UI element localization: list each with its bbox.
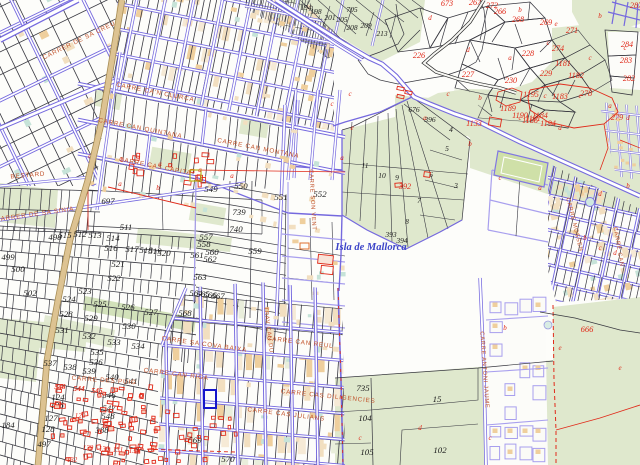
svg-text:512: 512 (73, 229, 87, 239)
svg-text:524: 524 (62, 294, 76, 304)
svg-text:393: 393 (384, 230, 397, 239)
svg-text:b: b (518, 6, 522, 14)
svg-text:523: 523 (78, 286, 92, 296)
svg-text:697: 697 (101, 196, 115, 206)
svg-text:15: 15 (433, 394, 442, 404)
svg-text:105: 105 (360, 447, 374, 457)
svg-text:a: a (608, 102, 612, 110)
svg-text:535: 535 (90, 347, 104, 357)
svg-text:520: 520 (157, 248, 171, 258)
svg-text:b: b (598, 12, 602, 20)
svg-text:531: 531 (55, 325, 68, 335)
svg-text:1133: 1133 (466, 119, 482, 128)
svg-text:184: 184 (1, 420, 15, 430)
svg-text:e: e (558, 344, 561, 352)
svg-text:527: 527 (144, 307, 158, 317)
svg-text:526: 526 (121, 302, 135, 312)
svg-text:559: 559 (248, 246, 262, 256)
svg-text:673: 673 (441, 0, 453, 8)
svg-text:a: a (118, 180, 122, 188)
svg-text:d: d (418, 424, 422, 432)
svg-text:127: 127 (44, 413, 58, 423)
svg-text:b: b (626, 182, 630, 190)
svg-text:529: 529 (84, 313, 98, 323)
svg-text:e: e (554, 20, 557, 28)
svg-text:4: 4 (449, 125, 453, 134)
svg-text:208: 208 (346, 23, 358, 32)
svg-text:287: 287 (630, 1, 640, 10)
svg-text:Isla de Mallorca: Isla de Mallorca (334, 242, 406, 253)
svg-text:a: a (198, 166, 202, 174)
svg-text:543: 543 (54, 382, 66, 391)
svg-text:268: 268 (512, 15, 524, 24)
svg-text:544: 544 (73, 384, 85, 393)
svg-text:561: 561 (190, 250, 203, 260)
svg-text:120: 120 (75, 412, 86, 420)
svg-text:b: b (156, 184, 160, 192)
svg-text:511: 511 (120, 222, 133, 232)
svg-text:545: 545 (91, 386, 103, 395)
svg-text:226: 226 (413, 51, 426, 60)
svg-text:3: 3 (453, 181, 458, 190)
svg-text:396: 396 (423, 115, 436, 124)
svg-text:198: 198 (310, 7, 322, 16)
svg-text:284: 284 (621, 40, 633, 49)
svg-text:570: 570 (221, 454, 235, 464)
svg-text:201: 201 (324, 13, 335, 22)
svg-text:b: b (583, 234, 587, 242)
svg-text:d: d (428, 14, 432, 22)
svg-text:267: 267 (469, 0, 482, 7)
svg-text:550: 550 (234, 181, 248, 191)
svg-text:525: 525 (93, 299, 107, 309)
svg-text:534: 534 (131, 341, 145, 351)
svg-text:d: d (598, 190, 602, 198)
svg-text:10: 10 (378, 171, 386, 180)
svg-text:528: 528 (59, 309, 73, 319)
svg-text:705: 705 (346, 5, 358, 14)
svg-text:a: a (230, 172, 234, 180)
svg-text:533: 533 (107, 337, 121, 347)
svg-text:132: 132 (67, 456, 78, 464)
svg-text:537: 537 (43, 358, 57, 368)
svg-text:228: 228 (522, 49, 534, 58)
svg-text:5: 5 (445, 144, 449, 153)
svg-text:282: 282 (623, 74, 635, 83)
svg-text:516: 516 (104, 243, 118, 253)
svg-text:7: 7 (417, 196, 421, 205)
svg-text:d: d (626, 114, 630, 122)
svg-text:551: 551 (274, 192, 287, 202)
svg-text:532: 532 (82, 331, 96, 341)
svg-text:530: 530 (122, 321, 136, 331)
svg-text:b: b (478, 94, 482, 102)
svg-text:d: d (466, 46, 470, 54)
svg-text:563: 563 (193, 272, 207, 282)
svg-text:1183: 1183 (552, 92, 568, 101)
svg-text:1195: 1195 (523, 90, 539, 99)
svg-text:562: 562 (203, 254, 217, 264)
svg-text:271: 271 (566, 26, 578, 35)
svg-text:104: 104 (358, 413, 372, 423)
svg-text:272: 272 (486, 1, 498, 10)
svg-text:274: 274 (552, 44, 564, 53)
svg-text:567: 567 (211, 291, 225, 301)
svg-text:499: 499 (1, 252, 15, 262)
svg-text:676: 676 (408, 105, 420, 114)
svg-text:e: e (350, 124, 353, 132)
svg-text:11: 11 (362, 161, 369, 170)
svg-text:130: 130 (99, 445, 110, 453)
svg-text:1191: 1191 (525, 114, 541, 123)
svg-text:230: 230 (505, 76, 517, 85)
svg-text:269: 269 (540, 18, 552, 27)
svg-text:133: 133 (129, 447, 140, 455)
svg-text:538: 538 (63, 362, 77, 372)
svg-text:279: 279 (611, 113, 623, 122)
svg-text:521: 521 (111, 259, 124, 269)
svg-text:e: e (618, 364, 621, 372)
svg-text:502: 502 (23, 288, 37, 298)
svg-text:b: b (503, 324, 507, 332)
svg-text:513: 513 (88, 230, 102, 240)
svg-text:498: 498 (48, 232, 62, 242)
svg-text:740: 740 (229, 224, 243, 234)
svg-text:739: 739 (232, 207, 246, 217)
svg-text:568: 568 (178, 308, 192, 318)
svg-text:229: 229 (540, 69, 552, 78)
svg-text:517: 517 (125, 244, 139, 254)
svg-text:227: 227 (462, 70, 475, 79)
svg-text:9: 9 (395, 173, 399, 182)
svg-text:a: a (508, 54, 512, 62)
svg-text:a: a (538, 184, 542, 192)
svg-text:1194: 1194 (540, 119, 556, 128)
svg-text:522: 522 (107, 273, 121, 283)
svg-text:283: 283 (620, 56, 632, 65)
svg-text:b: b (468, 140, 472, 148)
svg-text:500: 500 (11, 264, 25, 274)
svg-text:102: 102 (433, 445, 447, 455)
svg-text:1182: 1182 (568, 71, 584, 80)
svg-text:213: 213 (376, 29, 388, 38)
svg-text:d: d (558, 124, 562, 132)
svg-text:a: a (340, 154, 344, 162)
svg-text:549: 549 (204, 184, 218, 194)
svg-text:1181: 1181 (555, 59, 571, 68)
svg-text:131: 131 (113, 446, 124, 454)
svg-text:278: 278 (580, 89, 592, 98)
svg-text:128: 128 (41, 424, 55, 434)
svg-text:539: 539 (82, 366, 96, 376)
svg-text:666: 666 (581, 324, 595, 334)
svg-text:8: 8 (405, 217, 409, 226)
svg-text:129: 129 (83, 444, 94, 452)
svg-text:735: 735 (356, 383, 370, 393)
svg-text:209: 209 (360, 21, 372, 30)
svg-text:514: 514 (106, 233, 120, 243)
svg-text:497: 497 (37, 439, 51, 449)
